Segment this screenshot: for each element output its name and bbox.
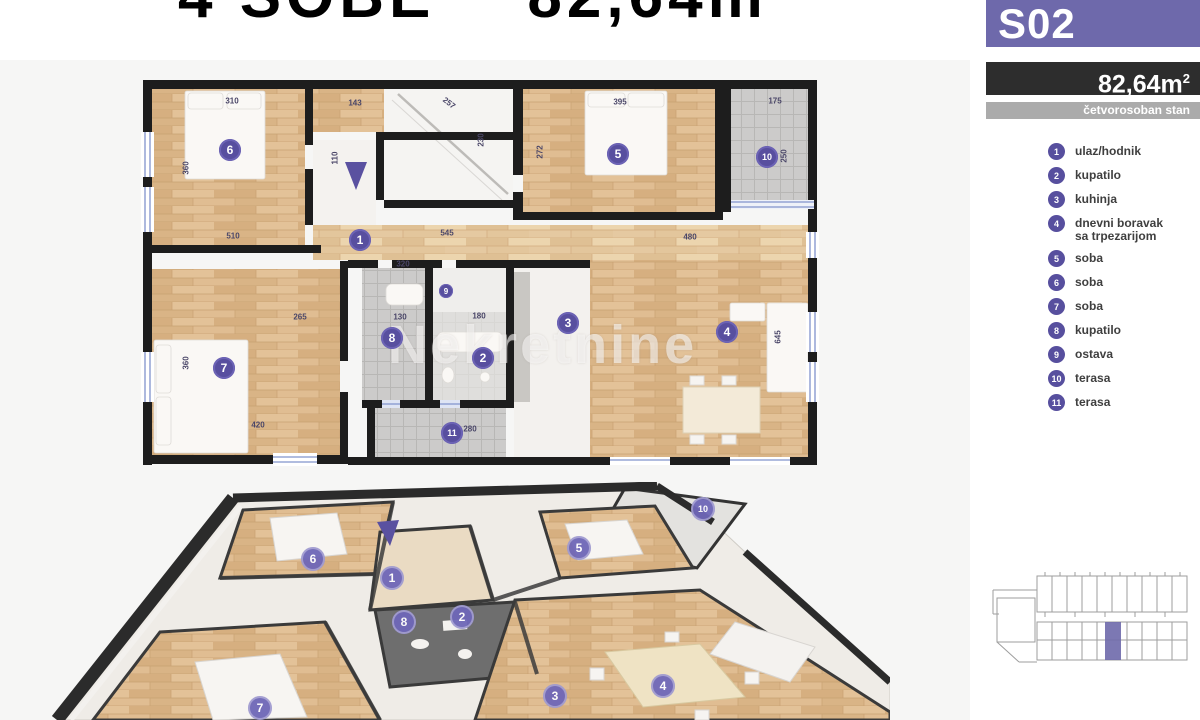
legend-number-badge: 2 <box>1048 167 1065 184</box>
room-badge-3: 3 <box>557 312 579 334</box>
highlighted-unit <box>1105 622 1121 660</box>
kitchen-counter <box>514 272 530 402</box>
dimension-label: 545 <box>440 229 453 238</box>
unit-code-header: S02 <box>986 0 1200 47</box>
legend-number-badge: 11 <box>1048 394 1065 411</box>
room-badge-1: 1 <box>380 566 404 590</box>
legend-label: terasa <box>1075 394 1110 409</box>
room-badge-4: 4 <box>716 321 738 343</box>
dimension-label: 265 <box>293 313 306 322</box>
dimension-label: 230 <box>477 133 486 146</box>
legend-item: 11terasa <box>1048 394 1198 411</box>
legend-item: 2kupatilo <box>1048 167 1198 184</box>
toilet-2 <box>442 367 454 383</box>
legend-number-badge: 10 <box>1048 370 1065 387</box>
room-badge-7: 7 <box>213 357 235 379</box>
page-title-rooms: 4 SOBE <box>178 0 435 28</box>
legend-number-badge: 4 <box>1048 215 1065 232</box>
legend-label: ulaz/hodnik <box>1075 143 1141 158</box>
legend-item: 5soba <box>1048 250 1198 267</box>
room-badge-8: 8 <box>381 327 403 349</box>
legend-item: 6soba <box>1048 274 1198 291</box>
dimension-label: 272 <box>536 145 545 158</box>
legend-item: 4dnevni boravaksa trpezarijom <box>1048 215 1198 243</box>
legend-label: kupatilo <box>1075 167 1121 182</box>
dimension-label: 320 <box>396 260 409 269</box>
room-badge-11: 11 <box>441 422 463 444</box>
legend-number-badge: 3 <box>1048 191 1065 208</box>
legend-label: dnevni boravaksa trpezarijom <box>1075 215 1163 243</box>
room-legend: 1ulaz/hodnik2kupatilo3kuhinja4dnevni bor… <box>1048 143 1198 418</box>
legend-item: 10terasa <box>1048 370 1198 387</box>
dimension-label: 180 <box>472 312 485 321</box>
legend-label: soba <box>1075 250 1103 265</box>
legend-label: kupatilo <box>1075 322 1121 337</box>
sofa <box>767 303 808 392</box>
room-badge-1: 1 <box>349 229 371 251</box>
room-badge-6: 6 <box>219 139 241 161</box>
page-title: 4 SOBE 82,64m2 <box>178 0 789 28</box>
floorplan-2d <box>130 62 852 486</box>
legend-number-badge: 9 <box>1048 346 1065 363</box>
room-badge-6: 6 <box>301 547 325 571</box>
legend-number-badge: 8 <box>1048 322 1065 339</box>
room-badge-9: 9 <box>439 284 453 298</box>
unit-area-bar: 82,64m2 <box>986 62 1200 95</box>
terrace-10-floor <box>731 89 814 200</box>
dimension-label: 360 <box>182 356 191 369</box>
dimension-label: 360 <box>182 161 191 174</box>
room-badge-5: 5 <box>607 143 629 165</box>
legend-number-badge: 6 <box>1048 274 1065 291</box>
dimension-label: 310 <box>225 97 238 106</box>
dimension-label: 420 <box>251 421 264 430</box>
page-title-area: 82,64m2 <box>527 0 789 28</box>
dimension-label: 510 <box>226 232 239 241</box>
legend-item: 1ulaz/hodnik <box>1048 143 1198 160</box>
dining-table <box>683 387 760 433</box>
dimension-label: 395 <box>613 98 626 107</box>
room-badge-7: 7 <box>248 696 272 720</box>
dimension-label: 250 <box>780 149 789 162</box>
dimension-label: 480 <box>683 233 696 242</box>
room-badge-5: 5 <box>567 536 591 560</box>
entry-hall-floor <box>313 140 376 225</box>
legend-number-badge: 5 <box>1048 250 1065 267</box>
room-badge-10: 10 <box>756 146 778 168</box>
room-badge-4: 4 <box>651 674 675 698</box>
dimension-label: 130 <box>393 313 406 322</box>
site-plan <box>985 570 1195 680</box>
dimension-label: 175 <box>768 97 781 106</box>
legend-label: terasa <box>1075 370 1110 385</box>
bathtub-2 <box>437 332 503 352</box>
room-badge-3: 3 <box>543 684 567 708</box>
dimension-label: 645 <box>774 330 783 343</box>
unit-type-bar: četvorosoban stan <box>986 102 1200 119</box>
room-badge-8: 8 <box>392 610 416 634</box>
legend-item: 8kupatilo <box>1048 322 1198 339</box>
room-badge-2: 2 <box>450 605 474 629</box>
legend-number-badge: 1 <box>1048 143 1065 160</box>
legend-item: 7soba <box>1048 298 1198 315</box>
legend-item: 9ostava <box>1048 346 1198 363</box>
room-badge-10: 10 <box>691 497 715 521</box>
listing-floorplan-page: 4 SOBE 82,64m2 <box>0 0 1200 720</box>
legend-label: soba <box>1075 298 1103 313</box>
legend-label: kuhinja <box>1075 191 1117 206</box>
bathtub-8 <box>386 284 423 305</box>
legend-label: soba <box>1075 274 1103 289</box>
dimension-label: 110 <box>331 152 340 165</box>
hall-floor <box>313 225 808 260</box>
room-badge-2: 2 <box>472 347 494 369</box>
legend-item: 3kuhinja <box>1048 191 1198 208</box>
floorplan-3d <box>45 482 890 720</box>
sink-2 <box>480 372 490 382</box>
dimension-label: 143 <box>348 99 361 108</box>
legend-number-badge: 7 <box>1048 298 1065 315</box>
legend-label: ostava <box>1075 346 1113 361</box>
dimension-label: 280 <box>463 425 476 434</box>
